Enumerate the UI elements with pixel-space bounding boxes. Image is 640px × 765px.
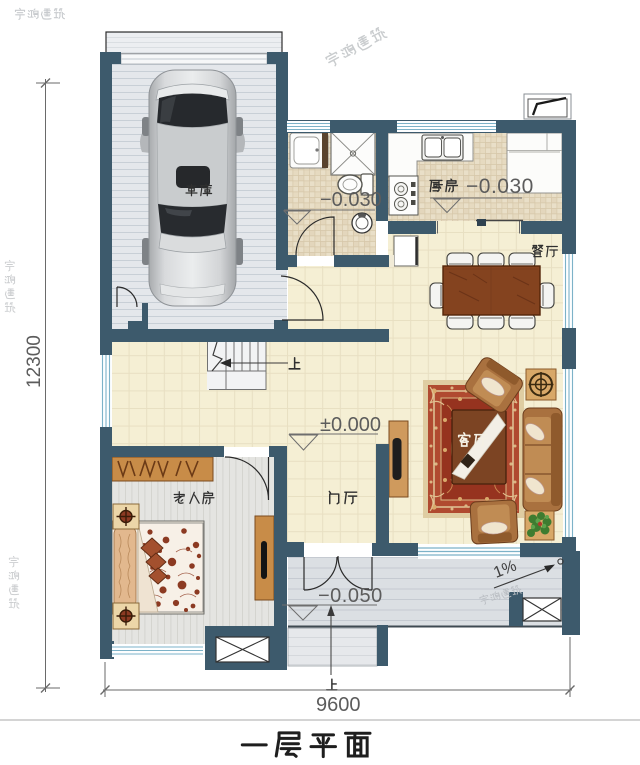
svg-text:−0.030: −0.030 (466, 175, 534, 198)
svg-text:−0.030: −0.030 (320, 189, 382, 211)
svg-text:9600: 9600 (316, 694, 361, 716)
svg-text:±0.000: ±0.000 (320, 414, 381, 436)
svg-text:−0.050: −0.050 (318, 585, 383, 607)
svg-text:12300: 12300 (24, 335, 45, 388)
